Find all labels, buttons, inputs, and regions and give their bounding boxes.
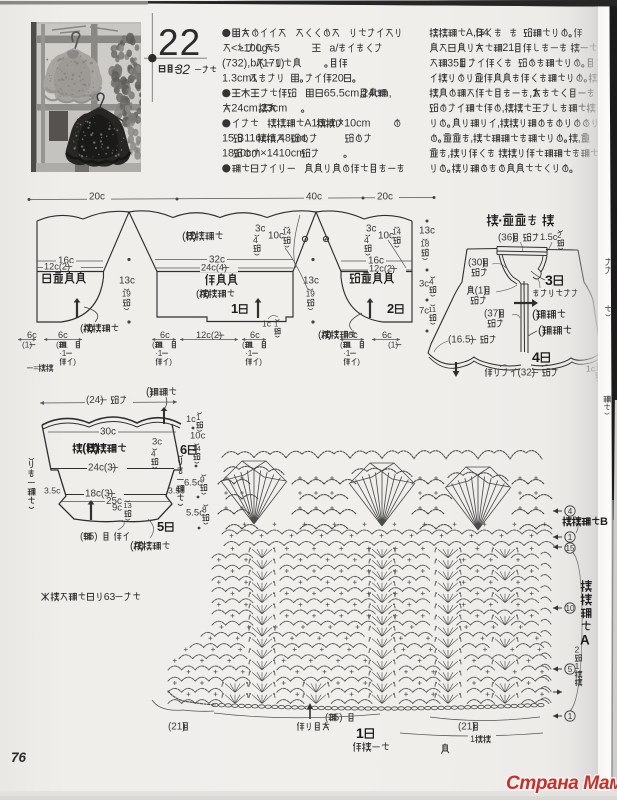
svg-text:(B): (B) [182,230,197,242]
svg-text:,1: ,1 [529,87,538,99]
svg-text:): ) [73,356,76,366]
svg-text:(36): (36) [498,233,516,244]
svg-text:1.5c: 1.5c [540,232,558,242]
svg-text:(1): (1) [22,339,32,349]
svg-text:14: 14 [282,228,291,237]
svg-text:19: 19 [122,290,132,299]
svg-text:9: 9 [200,475,205,485]
svg-text:6: 6 [180,442,187,457]
svg-text:1: 1 [196,413,201,422]
svg-text:=: = [33,363,38,373]
svg-text:1: 1 [470,734,475,744]
svg-text:3c: 3c [255,224,265,235]
svg-text:3c: 3c [152,436,162,447]
svg-text:(1): (1) [388,339,398,349]
svg-text:30c: 30c [100,427,116,438]
svg-text:(95): (95) [80,532,98,543]
svg-text:(37): (37) [484,309,502,320]
svg-text:65.5cm,24cm,: 65.5cm,24cm, [324,88,392,100]
svg-text:5: 5 [157,519,164,534]
svg-text:24c(3): 24c(3) [88,463,116,474]
svg-text:20c: 20c [377,192,393,203]
svg-text:13: 13 [123,501,132,510]
svg-text:76: 76 [11,750,27,765]
svg-text:): ) [259,356,262,366]
svg-text:(A): (A) [130,540,144,552]
svg-text:1: 1 [274,320,278,329]
svg-text:(732),b/(171): (732),b/(171) [222,57,284,69]
svg-text:··: ·· [498,212,507,228]
svg-text:40c: 40c [306,192,322,203]
svg-text:3: 3 [545,272,553,288]
svg-text:(35): (35) [325,713,343,724]
svg-text:24c(4): 24c(4) [201,263,227,273]
svg-text:13c: 13c [303,276,319,287]
svg-text:8: 8 [202,505,207,515]
svg-text:·1: ·1 [59,348,67,358]
svg-text:(32): (32) [518,368,536,379]
svg-text:,,: ,, [447,148,453,160]
svg-text:15,B116cm,48cm,: 15,B116cm,48cm, [222,133,308,145]
svg-text:9c: 9c [112,502,122,513]
svg-text:(A): (A) [318,330,332,341]
svg-text:·1: ·1 [245,348,253,358]
svg-text:4: 4 [253,235,258,245]
svg-text:2: 2 [557,231,562,240]
svg-text:): ) [169,356,172,366]
svg-text:12c(2): 12c(2) [44,262,70,272]
svg-text:(): () [146,386,153,398]
svg-text:(1): (1) [475,286,487,297]
svg-text:21,: 21, [502,42,517,54]
svg-text:4: 4 [151,449,156,459]
svg-text:13c: 13c [419,226,435,237]
svg-text:22: 22 [158,22,201,63]
svg-text:32: 32 [175,62,191,77]
svg-text:(): () [532,307,540,321]
svg-text:1: 1 [356,725,364,741]
svg-text:1c: 1c [262,319,272,329]
svg-text:18: 18 [420,240,430,249]
svg-text:1: 1 [231,301,238,316]
svg-text:1: 1 [575,661,580,671]
svg-text:3c: 3c [366,224,376,235]
svg-text:1.3cm1: 1.3cm1 [222,72,257,84]
svg-text:,: , [502,102,505,114]
svg-text:(A): (A) [196,289,210,300]
svg-text:63: 63 [104,592,116,603]
svg-text:2: 2 [387,301,394,316]
svg-text:(A): (A) [80,323,94,334]
svg-text:1810cm×1410cm: 1810cm×1410cm [222,148,305,160]
svg-text:2: 2 [575,645,580,655]
svg-text:12c(2): 12c(2) [369,264,395,274]
svg-text:12c(2): 12c(2) [196,330,222,340]
svg-text:A: A [580,632,590,647]
svg-text:(30): (30) [468,258,486,269]
svg-text:10c: 10c [190,430,206,441]
svg-text:<>100g=5: <>100g=5 [231,42,280,54]
svg-text:): ) [357,356,360,366]
svg-text:20: 20 [332,72,344,84]
svg-text:24cm,23cm: 24cm,23cm [231,103,287,115]
svg-text:A16cm×10cm: A16cm×10cm [304,118,370,130]
svg-text:a/: a/ [329,42,338,54]
svg-text:,: , [497,118,500,130]
svg-text:·1: ·1 [155,348,163,358]
svg-text:4: 4 [429,277,434,287]
svg-text:11: 11 [428,305,436,314]
svg-text:B: B [600,516,608,528]
svg-text:(21): (21) [168,722,186,733]
svg-text:13c: 13c [119,276,135,287]
svg-text:(21): (21) [458,722,476,733]
svg-text:·1: ·1 [343,348,351,358]
svg-text:1c: 1c [186,414,196,424]
svg-text:3c: 3c [419,278,429,289]
svg-text:351: 351 [447,57,465,69]
svg-text:(24): (24) [86,395,104,406]
svg-text:4: 4 [532,349,540,365]
svg-text:20c: 20c [89,192,105,203]
svg-text:3.5c: 3.5c [44,486,61,496]
svg-text:,: , [470,133,473,145]
svg-text:14: 14 [392,228,401,237]
svg-text:(): () [538,323,546,337]
svg-text:(B): (B) [82,441,98,455]
svg-text:Страна Мам: Страна Мам [506,773,617,794]
svg-text:A,B4: A,B4 [466,27,489,39]
svg-text:(16.5): (16.5) [448,335,474,346]
svg-text:4: 4 [364,235,369,245]
svg-text:19: 19 [306,290,316,299]
svg-text:14: 14 [192,444,201,453]
